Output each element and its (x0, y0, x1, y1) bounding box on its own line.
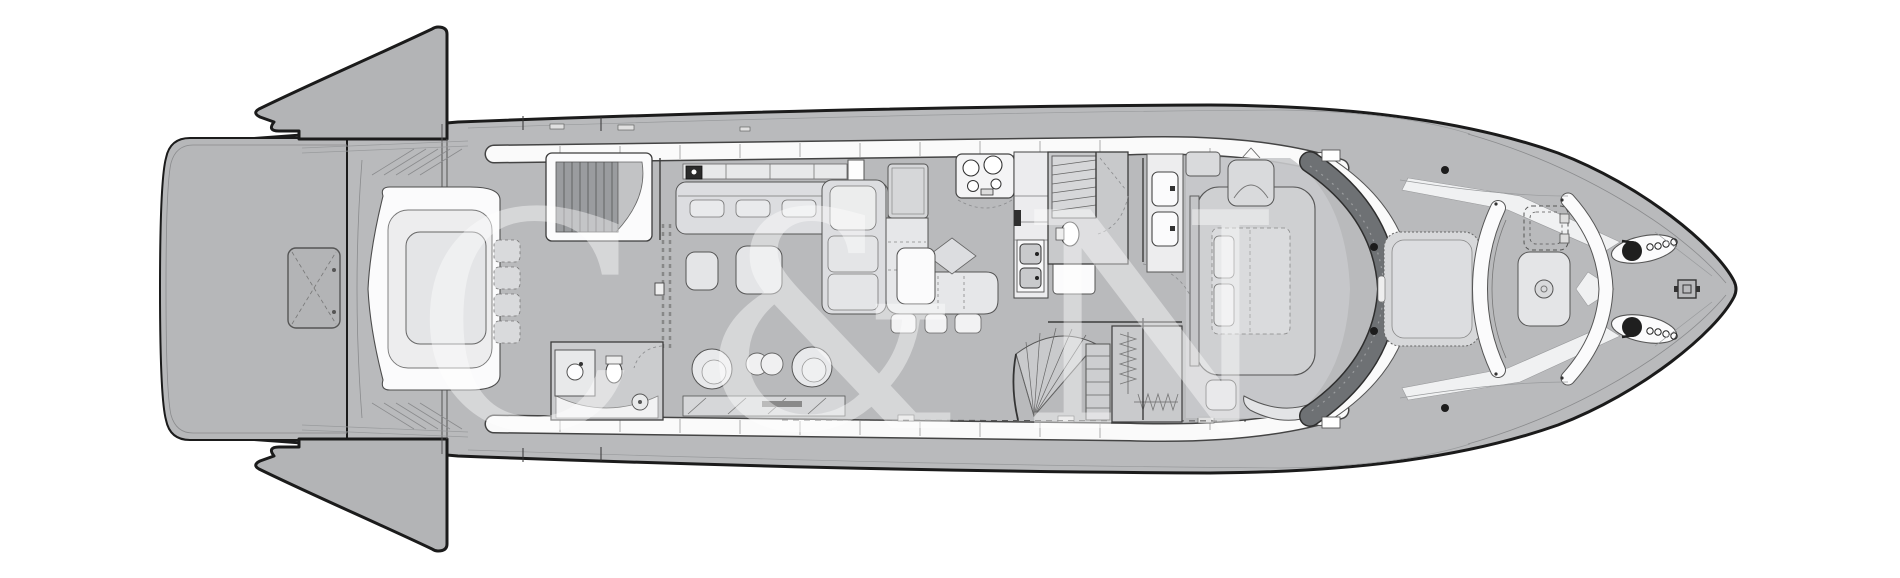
screw-dot (1494, 372, 1497, 375)
deck-cleat (740, 127, 750, 131)
stem-fitting (1674, 280, 1700, 298)
deck-bolt (1441, 404, 1449, 412)
windlass-capstan (1622, 317, 1642, 337)
tender-garage-hatch (288, 248, 340, 328)
screw-dot (1560, 376, 1563, 379)
sun-pad (1378, 232, 1484, 346)
deck-cleat (550, 124, 564, 129)
watermark: C&N (413, 150, 1337, 499)
pad-handle (1378, 276, 1385, 302)
deck-cleat (618, 125, 634, 130)
windlass-capstan (1622, 241, 1642, 261)
screw-dot (1560, 198, 1563, 201)
yacht-deck-plan: C&N (0, 0, 1900, 578)
deck-bolt (1441, 166, 1449, 174)
deck-bolt (1370, 327, 1378, 335)
deck-bolt (1370, 243, 1378, 251)
screw-dot (1494, 202, 1497, 205)
table-base (1535, 280, 1553, 298)
stern-wing-starboard (256, 27, 447, 139)
deck-plan-drawing: C&N (0, 0, 1900, 578)
